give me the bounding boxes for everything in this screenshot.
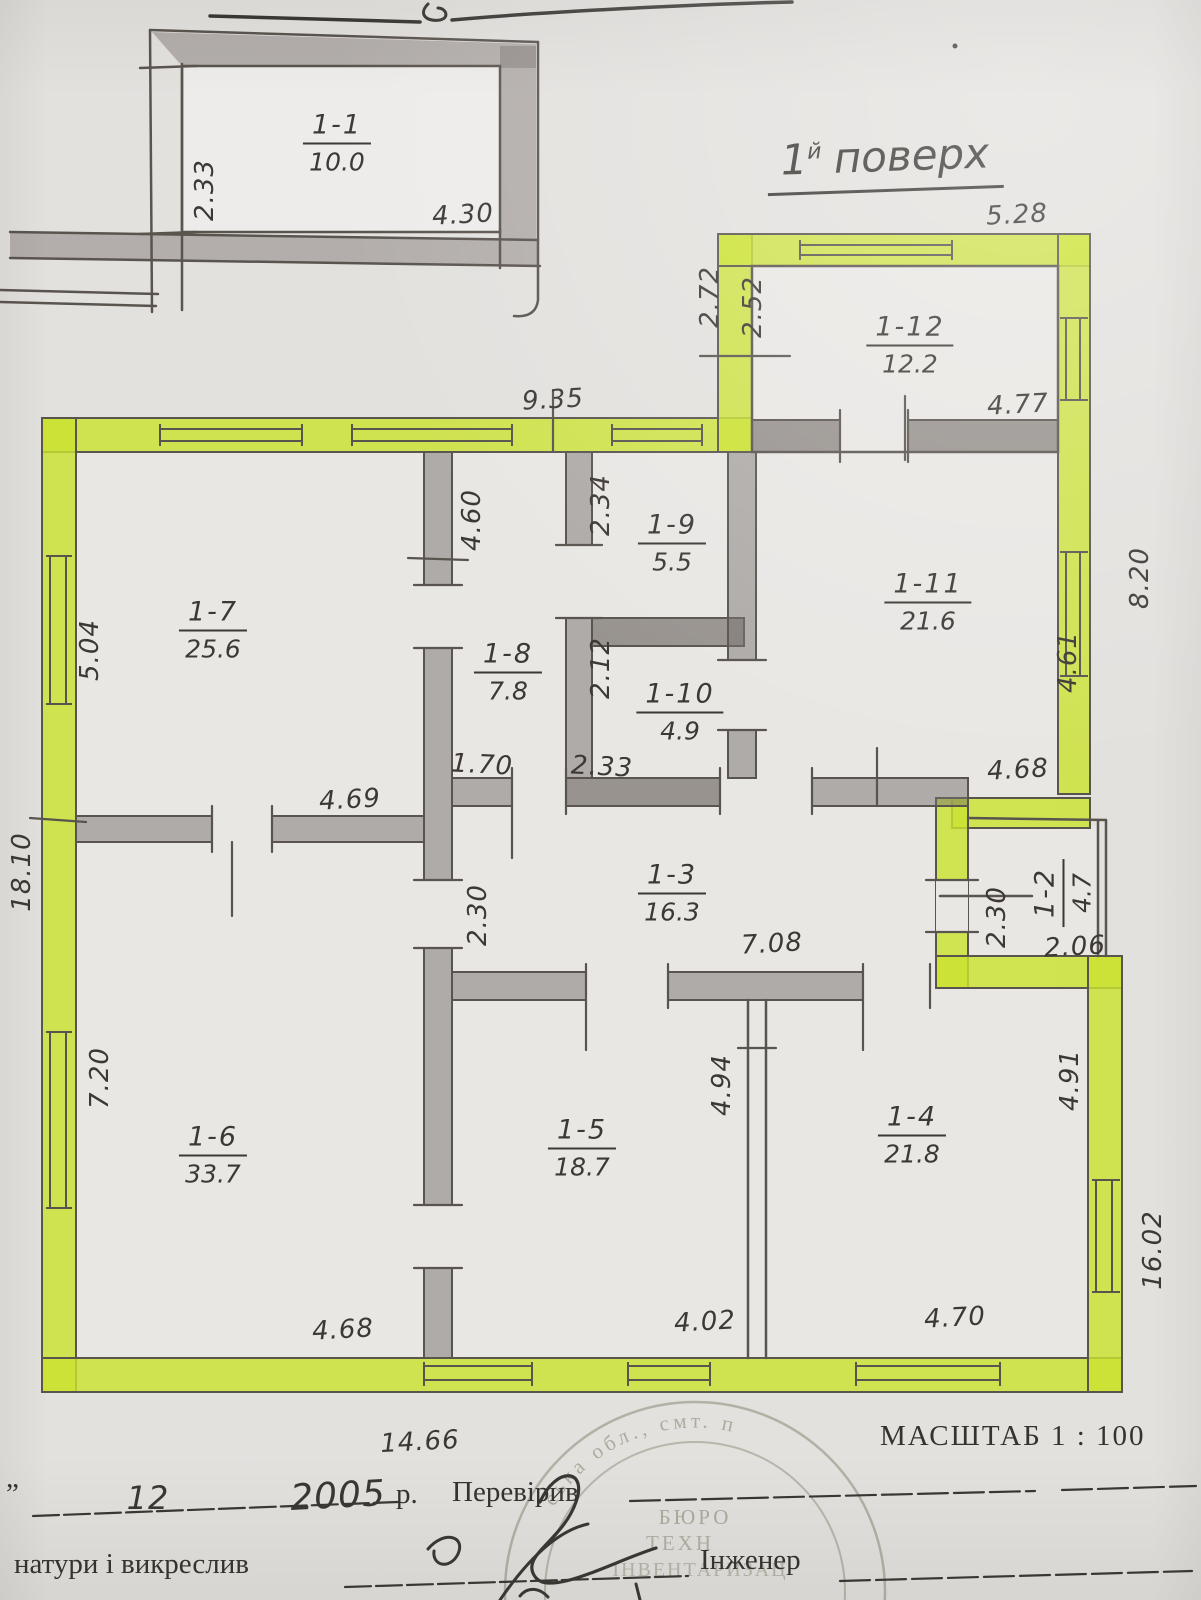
dim-left-outer: 18.10 [7, 832, 37, 911]
dim-annex-left-inner: 2.52 [738, 276, 768, 338]
scale-label: МАСШТАБ 1 : 100 [880, 1420, 1146, 1453]
dim-room4-right: 4.91 [1055, 1049, 1085, 1111]
room-label-1-7: 1-725.6 [179, 597, 247, 664]
room-label-1-8: 1-87.8 [474, 639, 542, 706]
dim-right-lower: 16.02 [1138, 1210, 1168, 1289]
room-label-1-12: 1-1212.2 [866, 312, 953, 379]
dim-room6-left: 7.20 [85, 1047, 115, 1109]
title-word: поверх [833, 128, 990, 182]
footer-year-handwritten: 2005 [289, 1473, 387, 1519]
dim-room1-bottom: 4.30 [431, 198, 494, 231]
room-label-1-6: 1-633.7 [179, 1122, 247, 1189]
dim-hall-bottom: 7.08 [740, 927, 803, 960]
footer-checked-label: Перевірив [452, 1476, 579, 1509]
detached-room-sketch [0, 30, 540, 316]
dim-room9-left: 2.34 [586, 474, 616, 536]
dim-room11-bottom: 4.68 [986, 753, 1049, 786]
dim-room10-left: 2.12 [586, 637, 616, 699]
dim-bottom-right: 4.70 [923, 1301, 986, 1334]
dim-main-top: 9.35 [521, 383, 584, 416]
dim-wall78-top: 4.60 [457, 489, 487, 551]
dim-annex-bottom: 4.77 [986, 388, 1049, 421]
title-superscript: й [807, 139, 822, 164]
dim-bottom-left: 4.68 [311, 1313, 374, 1346]
room-label-1-1: 1-110.0 [303, 110, 371, 177]
room-label-1-9: 1-95.5 [638, 510, 706, 577]
stamp-line1: БЮРО [659, 1505, 732, 1529]
dim-porch-left: 2.30 [982, 886, 1012, 948]
dim-room7-left: 5.04 [75, 619, 105, 681]
dim-room1-left: 2.33 [190, 159, 220, 221]
footer-drawn-label: натури і викреслив [14, 1548, 249, 1581]
room-label-1-5: 1-518.7 [548, 1115, 616, 1182]
page-title: 1йповерх [766, 128, 1004, 196]
dim-hall-left: 2.30 [463, 884, 493, 946]
dim-annex-left-outer: 2.72 [695, 266, 725, 328]
footer-quote-mark: ” [6, 1478, 19, 1511]
dim-porch-bottom: 2.06 [1043, 930, 1106, 963]
footer-day-handwritten: 12 [127, 1479, 170, 1517]
dim-bottom-mid: 4.02 [673, 1305, 736, 1338]
room-label-1-4: 1-421.8 [878, 1102, 946, 1169]
footer-engineer-label: Інженер [700, 1544, 801, 1577]
room-label-1-11: 1-1121.6 [884, 569, 971, 636]
dim-annex-top: 5.28 [985, 198, 1048, 231]
dim-room7-bottom: 4.69 [318, 783, 381, 816]
dim-bottom-total: 14.66 [380, 1425, 461, 1459]
footer-year-suffix: р. [396, 1478, 418, 1511]
dim-right-upper: 8.20 [1125, 547, 1155, 609]
room-label-1-3: 1-316.3 [638, 860, 706, 927]
dim-hall-seg2: 2.33 [570, 750, 633, 783]
room-label-1-2: 1-24.7 [1030, 859, 1097, 927]
title-number: 1 [780, 135, 808, 185]
dim-divider-5-4: 4.94 [707, 1054, 737, 1116]
porch-door-opening [936, 880, 968, 932]
dim-room11-right: 4.61 [1053, 631, 1083, 693]
room-label-1-10: 1-104.9 [636, 679, 723, 746]
floor-plan-page: ська обл., смт. п БЮРО ТЕХН ІНВЕНТАРИЗАЦ… [0, 0, 1201, 1600]
plan-line-art: ська обл., смт. п БЮРО ТЕХН ІНВЕНТАРИЗАЦ [0, 0, 1201, 1600]
dim-hall-seg1: 1.70 [450, 748, 513, 781]
